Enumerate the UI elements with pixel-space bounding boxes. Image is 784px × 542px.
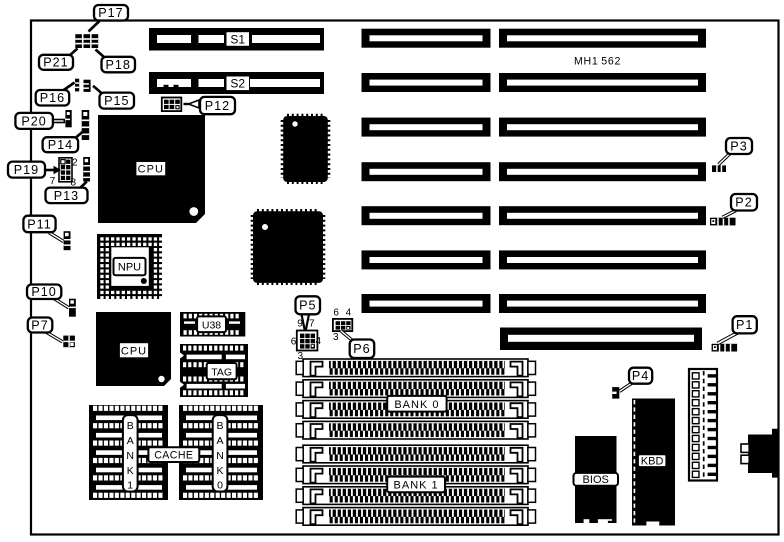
svg-text:A: A <box>216 435 223 447</box>
svg-text:CPU: CPU <box>121 346 147 358</box>
svg-text:U38: U38 <box>202 319 221 331</box>
svg-text:S2: S2 <box>230 77 245 91</box>
svg-text:BIOS: BIOS <box>583 474 609 486</box>
svg-text:K: K <box>127 465 134 477</box>
svg-text:6: 6 <box>291 337 297 348</box>
svg-text:P19: P19 <box>14 163 39 177</box>
svg-text:N: N <box>216 450 224 462</box>
svg-text:2: 2 <box>72 158 78 169</box>
svg-text:CACHE: CACHE <box>154 450 193 462</box>
svg-text:P17: P17 <box>98 6 123 20</box>
svg-text:7: 7 <box>50 176 56 187</box>
svg-text:BANK 1: BANK 1 <box>394 480 439 492</box>
svg-text:B: B <box>127 420 134 432</box>
svg-text:P12: P12 <box>205 99 230 113</box>
svg-text:4: 4 <box>346 308 352 319</box>
svg-text:S1: S1 <box>230 32 245 46</box>
svg-text:N: N <box>126 450 134 462</box>
svg-text:P7: P7 <box>31 318 48 332</box>
svg-text:P21: P21 <box>43 56 68 70</box>
svg-text:P10: P10 <box>31 285 56 299</box>
svg-text:P1: P1 <box>736 318 753 332</box>
svg-text:P14: P14 <box>48 138 73 152</box>
svg-text:0: 0 <box>217 480 223 492</box>
svg-text:3: 3 <box>298 351 304 362</box>
svg-text:P13: P13 <box>54 189 79 203</box>
svg-text:P2: P2 <box>735 196 752 210</box>
svg-text:P4: P4 <box>632 369 649 383</box>
svg-text:K: K <box>216 465 223 477</box>
svg-text:7: 7 <box>309 319 315 330</box>
svg-text:B: B <box>216 420 223 432</box>
svg-text:1: 1 <box>127 480 133 492</box>
svg-text:P3: P3 <box>730 139 747 153</box>
svg-text:P6: P6 <box>353 342 370 356</box>
svg-text:TAG: TAG <box>211 367 232 379</box>
svg-text:P15: P15 <box>104 94 129 108</box>
svg-text:KBD: KBD <box>641 456 664 468</box>
svg-text:3: 3 <box>333 332 339 343</box>
svg-text:4: 4 <box>316 336 322 347</box>
svg-text:P5: P5 <box>299 299 316 313</box>
svg-text:P20: P20 <box>21 114 46 128</box>
svg-text:P18: P18 <box>105 58 130 72</box>
svg-text:6: 6 <box>333 308 339 319</box>
svg-text:MH1 562: MH1 562 <box>574 55 621 67</box>
svg-text:CPU: CPU <box>138 164 164 176</box>
svg-text:NPU: NPU <box>118 262 141 274</box>
svg-text:P16: P16 <box>40 91 65 105</box>
svg-text:P11: P11 <box>27 217 51 231</box>
svg-text:A: A <box>127 435 134 447</box>
svg-text:BANK 0: BANK 0 <box>394 399 439 411</box>
